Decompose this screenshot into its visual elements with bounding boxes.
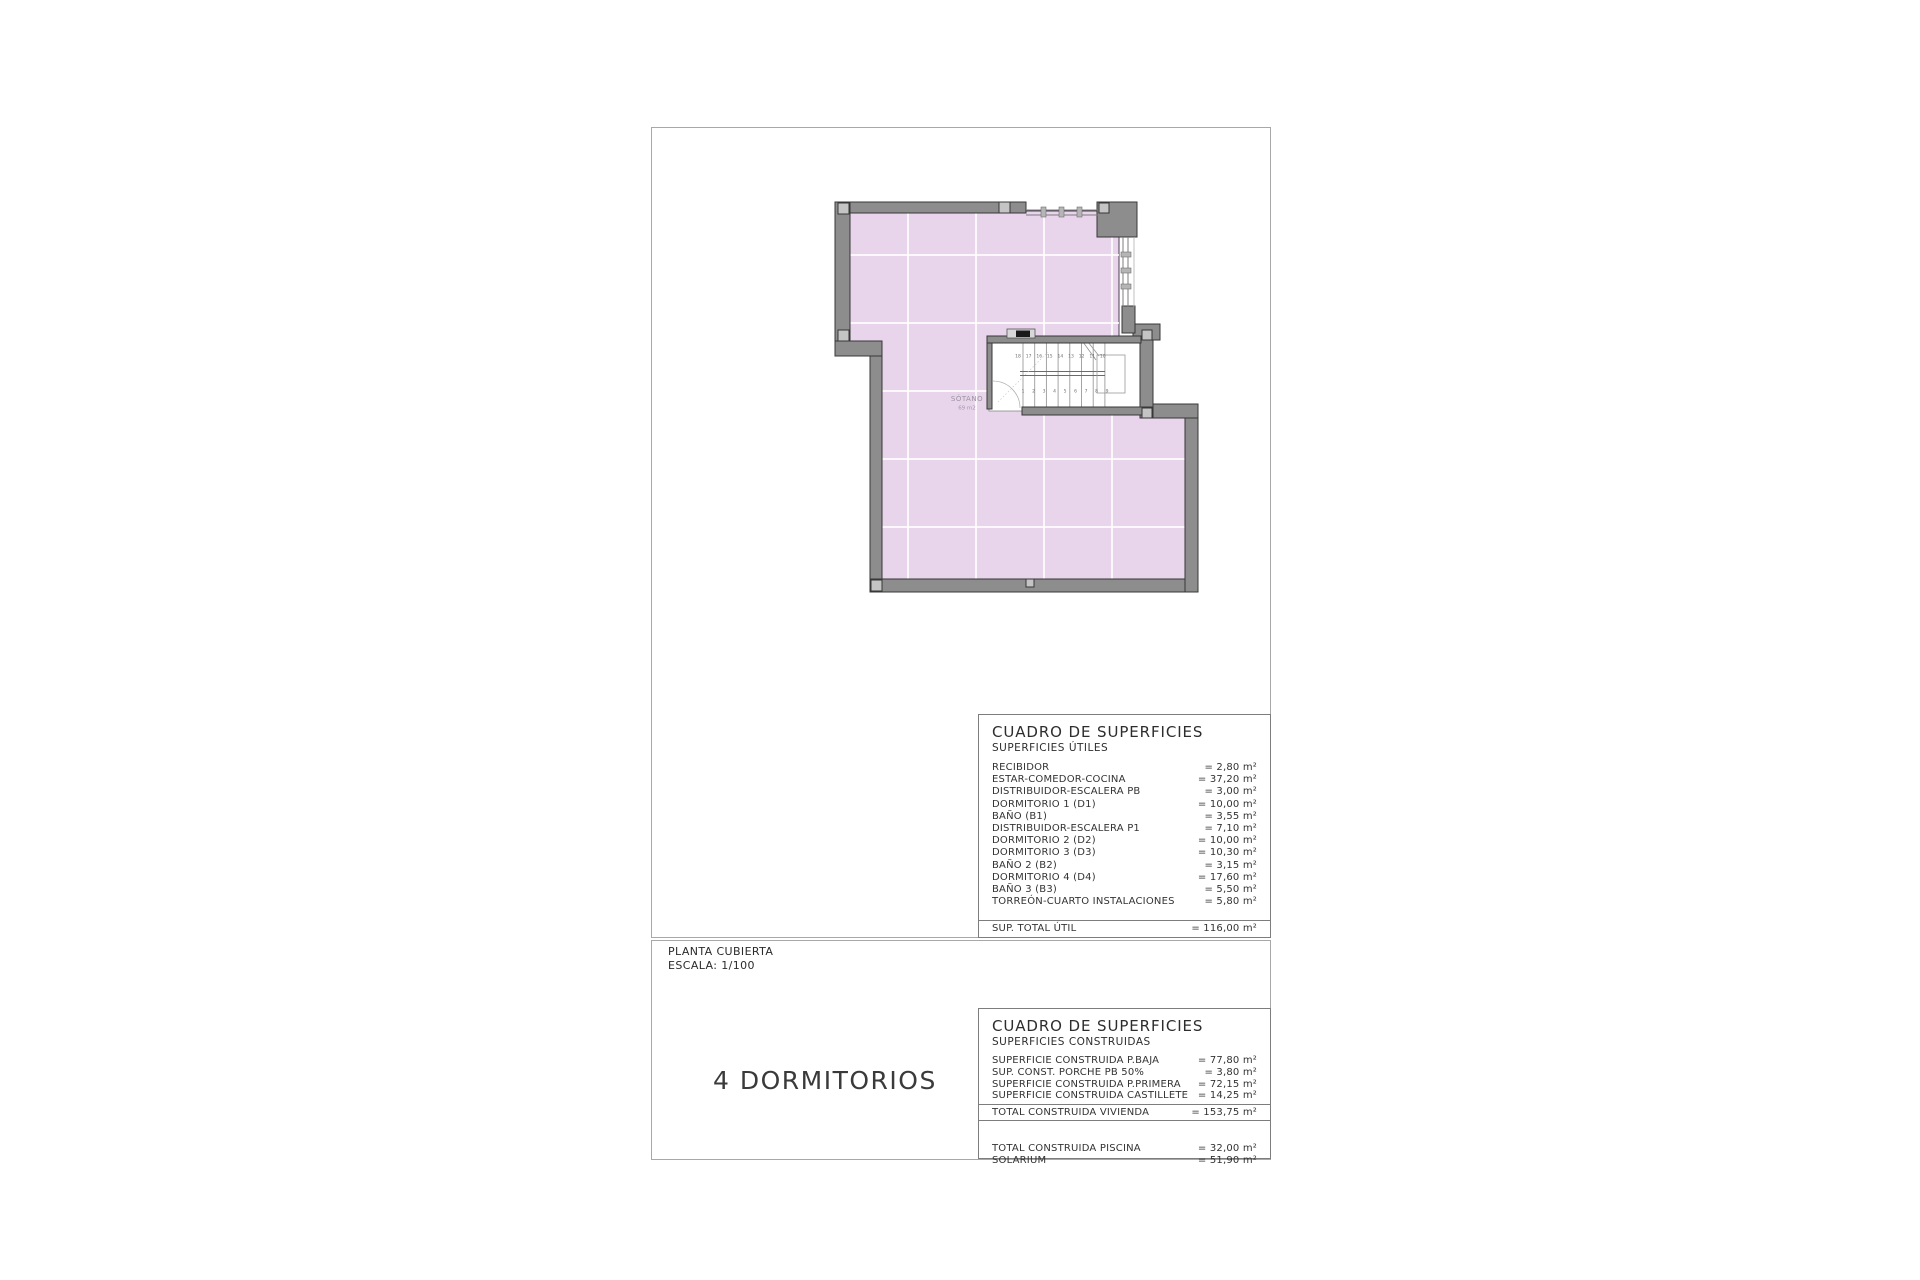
row-value: = 3,00 m² <box>1204 786 1257 798</box>
row-label: DORMITORIO 4 (D4) <box>992 872 1096 884</box>
canvas: { "title_block": { "plan_name": "PLANTA … <box>0 0 1920 1280</box>
stairwell: 181716151413121110 123456789 <box>989 341 1141 411</box>
svg-text:3: 3 <box>1043 389 1046 395</box>
row-value: = 17,60 m² <box>1198 872 1257 884</box>
row-label: TORREÓN-CUARTO INSTALACIONES <box>992 896 1175 908</box>
table-row: SUPERFICIE CONSTRUIDA P.PRIMERA = 72,15 … <box>992 1079 1257 1091</box>
row-value: = 2,80 m² <box>1204 762 1257 774</box>
svg-text:16: 16 <box>1036 354 1042 360</box>
room-label: SÓTANO <box>951 394 983 403</box>
svg-text:4: 4 <box>1053 389 1056 395</box>
window-right <box>1121 237 1134 307</box>
table-row: RECIBIDOR = 2,80 m² <box>992 762 1257 774</box>
svg-text:11: 11 <box>1089 354 1095 360</box>
table-row: BAÑO 3 (B3) = 5,50 m² <box>992 884 1257 896</box>
row-value: = 32,00 m² <box>1198 1143 1257 1155</box>
row-value: = 77,80 m² <box>1198 1055 1257 1067</box>
table-row: BAÑO (B1) = 3,55 m² <box>992 811 1257 823</box>
svg-text:5: 5 <box>1064 389 1067 395</box>
row-label: SUPERFICIE CONSTRUIDA P.BAJA <box>992 1055 1159 1067</box>
table-row: SUPERFICIE CONSTRUIDA CASTILLETE = 14,25… <box>992 1090 1257 1102</box>
table-row: DORMITORIO 4 (D4) = 17,60 m² <box>992 872 1257 884</box>
table-rows: SUPERFICIE CONSTRUIDA P.BAJA = 77,80 m² … <box>992 1055 1257 1102</box>
row-label: RECIBIDOR <box>992 762 1049 774</box>
table-row: TORREÓN-CUARTO INSTALACIONES = 5,80 m² <box>992 896 1257 908</box>
table-rows: RECIBIDOR = 2,80 m² ESTAR-COMEDOR-COCINA… <box>992 762 1257 908</box>
row-value: = 10,30 m² <box>1198 847 1257 859</box>
svg-text:1: 1 <box>1022 389 1025 395</box>
row-value: = 7,10 m² <box>1204 823 1257 835</box>
svg-text:17: 17 <box>1026 354 1032 360</box>
table-subtitle: SUPERFICIES CONSTRUIDAS <box>992 1036 1270 1048</box>
row-label: SUPERFICIE CONSTRUIDA CASTILLETE <box>992 1090 1188 1102</box>
table-title: CUADRO DE SUPERFICIES <box>992 1017 1270 1035</box>
bedrooms-label: 4 DORMITORIOS <box>713 1066 937 1095</box>
table-row: SUPERFICIE CONSTRUIDA P.BAJA = 77,80 m² <box>992 1055 1257 1067</box>
room-area-label: 69 m2 <box>958 406 976 412</box>
table-total-row: TOTAL CONSTRUIDA VIVIENDA = 153,75 m² <box>979 1104 1270 1121</box>
svg-text:13: 13 <box>1068 354 1074 360</box>
table-superficies-construidas: CUADRO DE SUPERFICIES SUPERFICIES CONSTR… <box>978 1008 1271 1159</box>
svg-text:18: 18 <box>1015 354 1021 360</box>
svg-text:8: 8 <box>1095 389 1098 395</box>
table-subtitle: SUPERFICIES ÚTILES <box>992 742 1270 754</box>
svg-text:2: 2 <box>1032 389 1035 395</box>
row-label: DORMITORIO 3 (D3) <box>992 847 1096 859</box>
row-value: = 37,20 m² <box>1198 774 1257 786</box>
row-value: = 5,50 m² <box>1204 884 1257 896</box>
row-value: = 3,80 m² <box>1204 1067 1257 1079</box>
table-superficies-utiles: CUADRO DE SUPERFICIES SUPERFICIES ÚTILES… <box>978 714 1271 938</box>
stair-door-marker <box>1007 329 1035 338</box>
table-row: BAÑO 2 (B2) = 3,15 m² <box>992 860 1257 872</box>
row-label: DISTRIBUIDOR-ESCALERA PB <box>992 786 1141 798</box>
svg-text:7: 7 <box>1085 389 1088 395</box>
row-value: = 5,80 m² <box>1204 896 1257 908</box>
table-extra-rows: TOTAL CONSTRUIDA PISCINA = 32,00 m² SOLA… <box>992 1143 1257 1167</box>
plan-scale: ESCALA: 1/100 <box>668 959 773 973</box>
plan-name: PLANTA CUBIERTA <box>668 945 773 959</box>
stair-numbers-lower: 123456789 <box>1022 389 1109 395</box>
table-row: DORMITORIO 3 (D3) = 10,30 m² <box>992 847 1257 859</box>
row-value: = 10,00 m² <box>1198 835 1257 847</box>
table-row: SUP. CONST. PORCHE PB 50% = 3,80 m² <box>992 1067 1257 1079</box>
table-total-row: SUP. TOTAL ÚTIL = 116,00 m² <box>979 920 1270 937</box>
table-row: DISTRIBUIDOR-ESCALERA P1 = 7,10 m² <box>992 823 1257 835</box>
row-label: SUP. CONST. PORCHE PB 50% <box>992 1067 1144 1079</box>
svg-text:9: 9 <box>1106 389 1109 395</box>
row-label: ESTAR-COMEDOR-COCINA <box>992 774 1126 786</box>
table-title: CUADRO DE SUPERFICIES <box>992 723 1270 741</box>
svg-text:14: 14 <box>1058 354 1064 360</box>
table-row: ESTAR-COMEDOR-COCINA = 37,20 m² <box>992 774 1257 786</box>
table-row: DORMITORIO 1 (D1) = 10,00 m² <box>992 799 1257 811</box>
total-label: SUP. TOTAL ÚTIL <box>992 923 1076 934</box>
row-value: = 72,15 m² <box>1198 1079 1257 1091</box>
row-label: DORMITORIO 2 (D2) <box>992 835 1096 847</box>
svg-text:12: 12 <box>1079 354 1085 360</box>
row-value: = 3,55 m² <box>1204 811 1257 823</box>
table-row: DISTRIBUIDOR-ESCALERA PB = 3,00 m² <box>992 786 1257 798</box>
total-value: = 153,75 m² <box>1191 1107 1257 1118</box>
plan-title-block: PLANTA CUBIERTA ESCALA: 1/100 <box>668 945 773 972</box>
total-label: TOTAL CONSTRUIDA VIVIENDA <box>992 1107 1149 1118</box>
table-row: SOLARIUM = 51,90 m² <box>992 1155 1257 1167</box>
row-label: BAÑO 2 (B2) <box>992 860 1057 872</box>
svg-text:6: 6 <box>1074 389 1077 395</box>
floor-plan: 181716151413121110 123456789 <box>0 0 1920 1280</box>
svg-text:15: 15 <box>1047 354 1053 360</box>
row-value: = 3,15 m² <box>1204 860 1257 872</box>
total-value: = 116,00 m² <box>1191 923 1257 934</box>
row-label: BAÑO 3 (B3) <box>992 884 1057 896</box>
row-label: SOLARIUM <box>992 1155 1046 1167</box>
row-label: SUPERFICIE CONSTRUIDA P.PRIMERA <box>992 1079 1181 1091</box>
row-label: DORMITORIO 1 (D1) <box>992 799 1096 811</box>
row-label: DISTRIBUIDOR-ESCALERA P1 <box>992 823 1140 835</box>
table-row: DORMITORIO 2 (D2) = 10,00 m² <box>992 835 1257 847</box>
row-label: BAÑO (B1) <box>992 811 1047 823</box>
table-row: TOTAL CONSTRUIDA PISCINA = 32,00 m² <box>992 1143 1257 1155</box>
row-value: = 51,90 m² <box>1198 1155 1257 1167</box>
svg-text:10: 10 <box>1100 354 1106 360</box>
row-value: = 14,25 m² <box>1198 1090 1257 1102</box>
row-value: = 10,00 m² <box>1198 799 1257 811</box>
stair-numbers-upper: 181716151413121110 <box>1015 354 1106 360</box>
row-label: TOTAL CONSTRUIDA PISCINA <box>992 1143 1141 1155</box>
